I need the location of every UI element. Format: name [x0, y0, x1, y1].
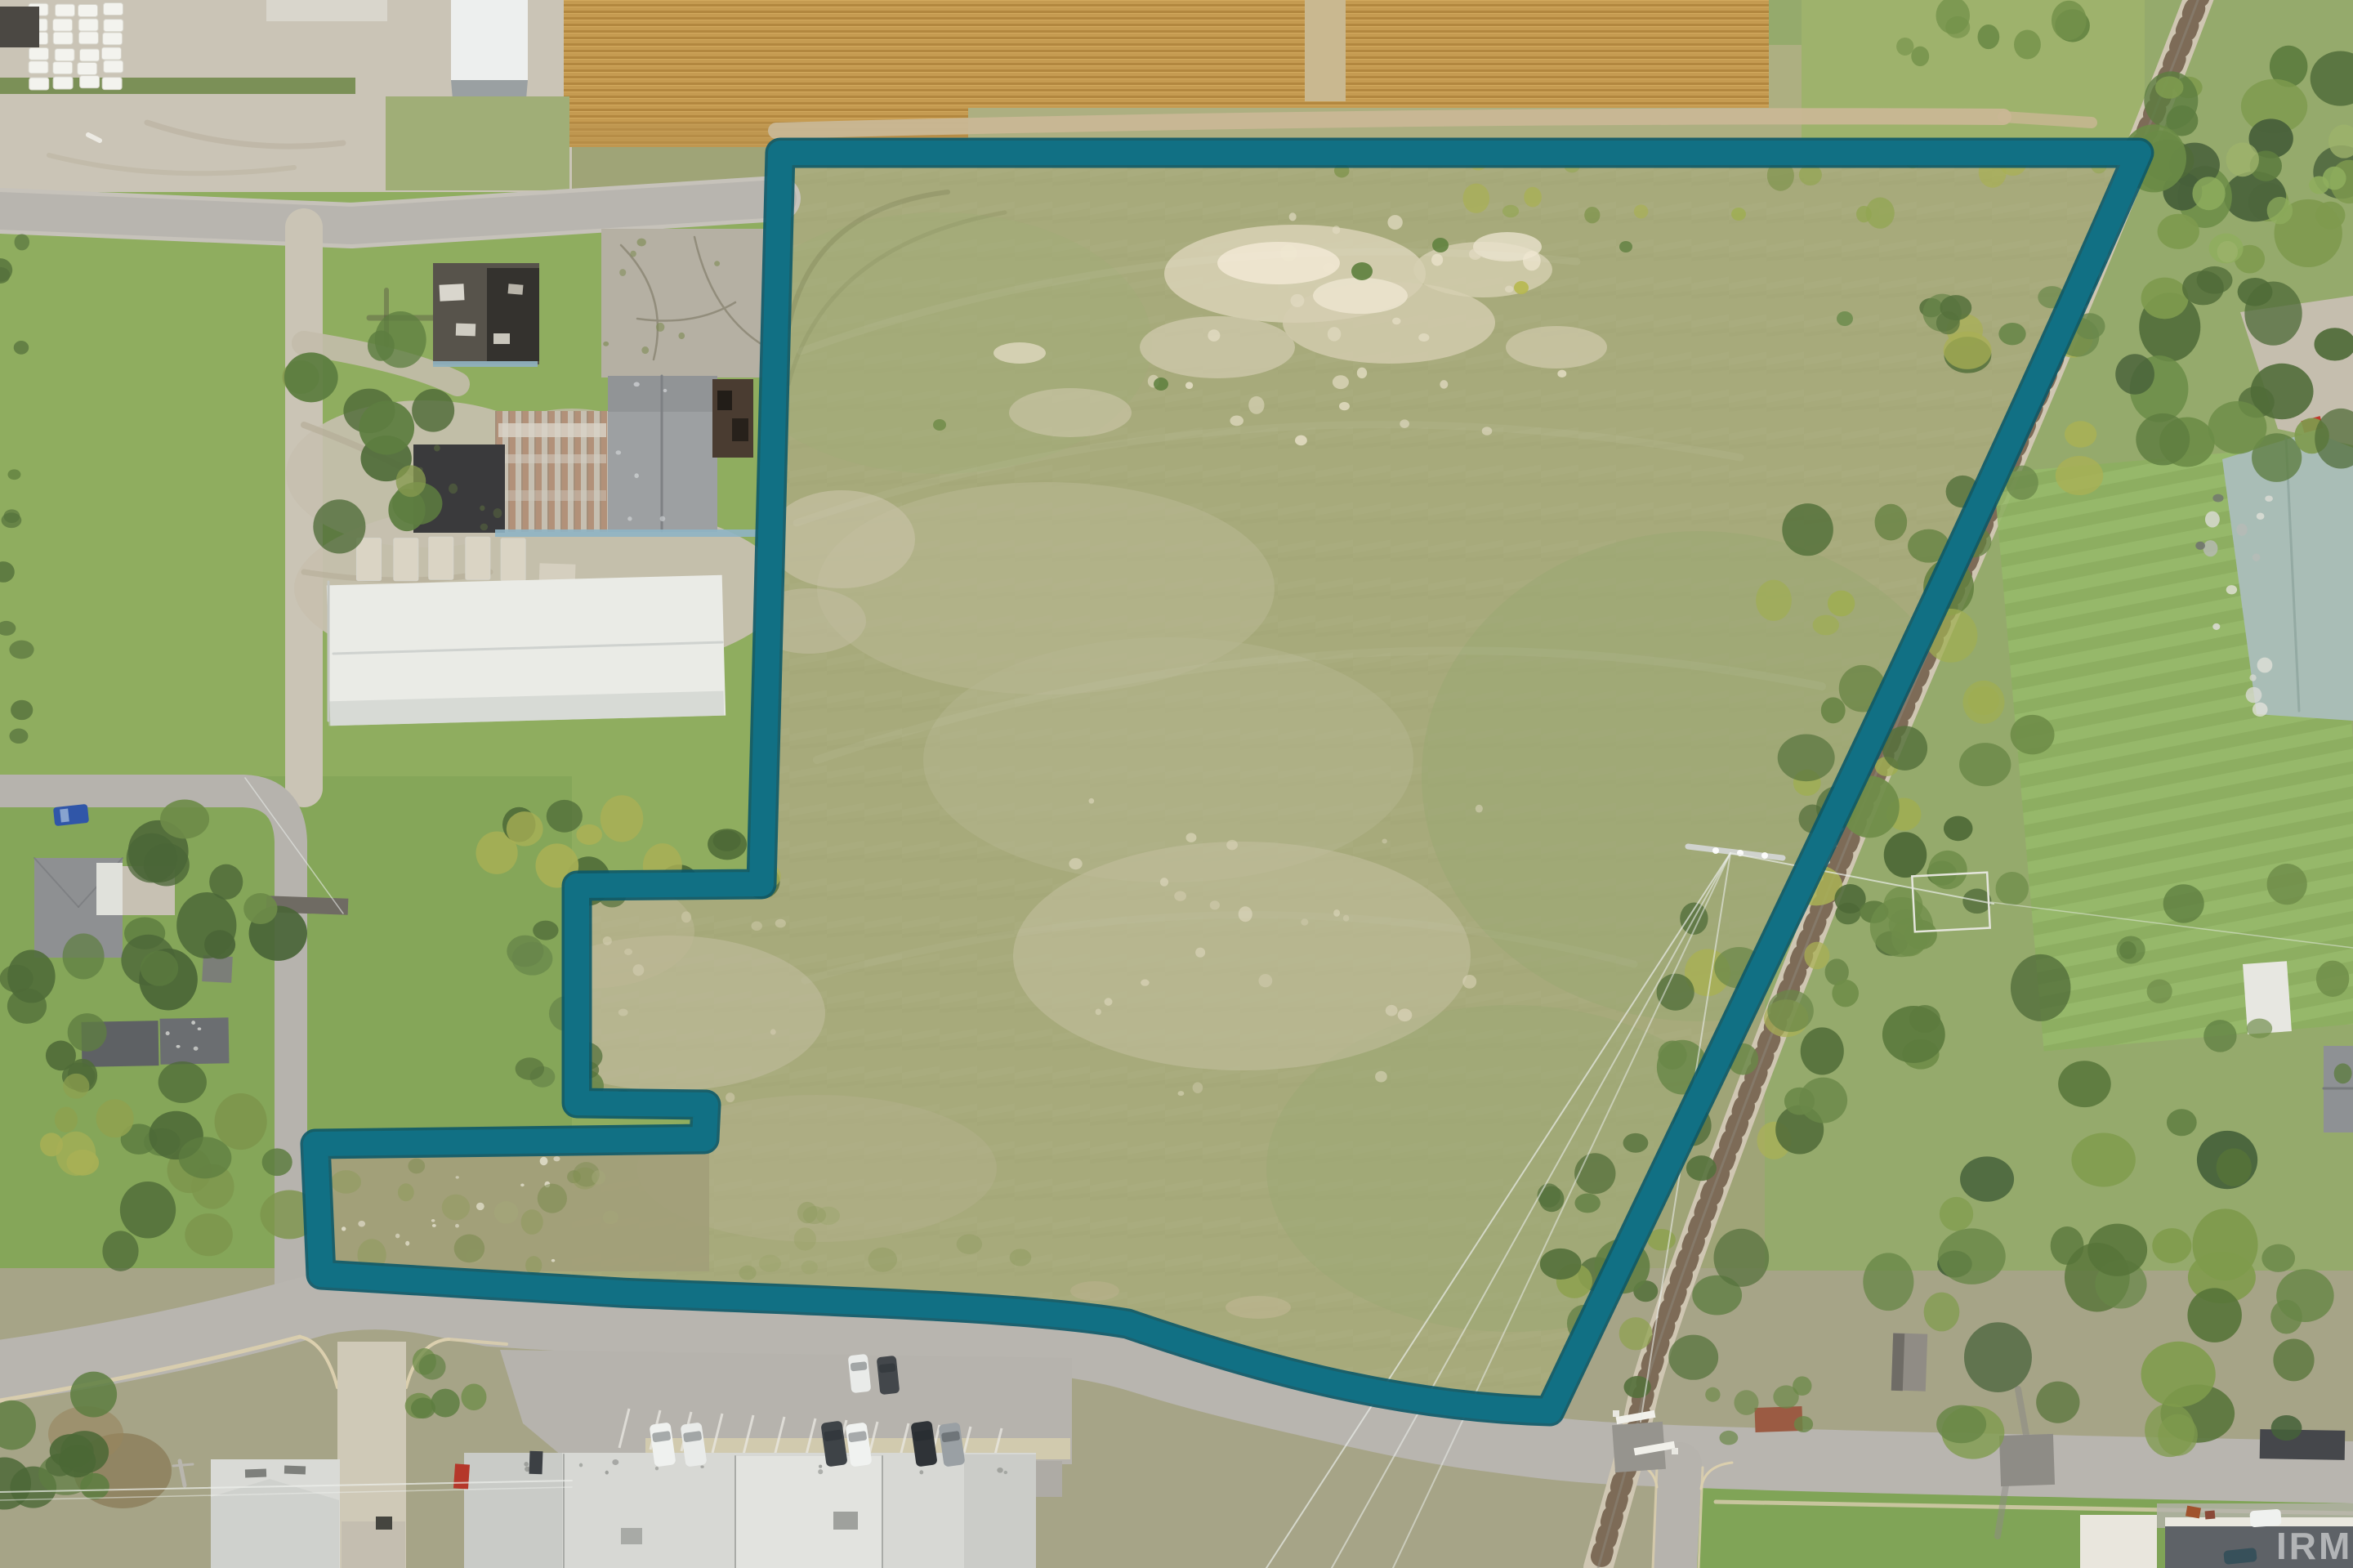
rail-brush-blob: [1962, 681, 2004, 724]
dirt-spot: [1070, 1281, 1119, 1301]
dark-pavement-patch: [1999, 1434, 2055, 1486]
strip-debris-blob: [455, 1224, 459, 1228]
mobile-home-vents-blob: [194, 1047, 199, 1051]
weeds-on-pad-blob: [641, 346, 649, 354]
junk-pile-blob: [2257, 658, 2273, 673]
rail-brush-blob: [1756, 580, 1792, 621]
sand-flecks-blob: [1226, 840, 1238, 850]
brush-along-boundary-blob: [512, 942, 553, 976]
skylight-dots-blob: [700, 1466, 703, 1468]
sand-flecks-blob: [1557, 370, 1566, 377]
grass-gap-blob: [2267, 197, 2293, 225]
tree-band-bottom-right-blob: [1863, 1253, 1913, 1311]
sparse-lawn-trees-blob: [2147, 979, 2172, 1003]
sand-flecks-blob: [1096, 1009, 1101, 1016]
field-edge-bushes-blob: [801, 1261, 818, 1275]
residential-trees-blob: [215, 1093, 267, 1150]
sand-flecks-blob: [1323, 263, 1335, 273]
hay-bale-stack-cell: [53, 77, 73, 89]
roof-vents-blob: [663, 389, 668, 392]
brush-along-boundary-blob: [533, 921, 558, 940]
rail-brush-blob: [1686, 1155, 1717, 1181]
tree-band-bottom-right-blob: [2261, 1244, 2295, 1272]
tree-block-top-right-blob: [2182, 270, 2224, 305]
inner-tree-row-blob: [547, 800, 583, 833]
field-edge-bushes-blob: [759, 1255, 781, 1272]
left-edge-hedge-blob: [15, 234, 29, 250]
tree-band-bottom-right-blob: [2187, 1288, 2241, 1342]
tree-band-east-blob: [1944, 816, 1973, 842]
strip-scrub-blob: [398, 1183, 414, 1201]
yellow-tree-blob: [55, 1107, 78, 1132]
field-edge-bushes-blob: [739, 1266, 757, 1280]
crossing-bushes-blob: [1794, 1416, 1813, 1432]
rail-brush-blob: [1659, 1041, 1687, 1070]
red-truck: [453, 1463, 470, 1489]
gate-post: [1672, 1448, 1678, 1454]
sparse-lawn-trees-blob: [2119, 941, 2136, 959]
sand-flecks-blob: [1476, 805, 1483, 813]
sand-flecks-blob: [1339, 402, 1350, 410]
crossing-bushes-blob: [1705, 1387, 1720, 1402]
building-b-section: [464, 1453, 562, 1568]
small-shed: [202, 955, 233, 983]
hay-bale-stack-cell: [80, 49, 100, 61]
top-scrub-row-blob: [1502, 205, 1519, 217]
farm-west-trees-blob: [284, 352, 338, 402]
skylight-dots-blob: [997, 1467, 1002, 1473]
top-edge-bushes-blob: [2052, 1, 2087, 40]
white-garage: [96, 863, 123, 915]
field-edge-bushes-blob: [803, 1206, 826, 1224]
residential-trees-blob: [102, 1231, 138, 1271]
rail-brush-blob: [1574, 1193, 1600, 1213]
farm-house-dark-wing: [487, 268, 539, 361]
hay-bale-stack-cell: [104, 3, 123, 16]
strip-scrub-blob: [331, 1170, 361, 1194]
strip-scrub-blob: [592, 1170, 605, 1185]
residential-trees-blob: [262, 1148, 292, 1176]
rail-brush-blob: [1574, 1153, 1615, 1194]
dirt-track-spur: [2003, 117, 2092, 123]
tree-band-bottom-right-blob: [2087, 1224, 2147, 1276]
hay-bale-stack-cell: [53, 62, 73, 74]
skylight-dots-blob: [818, 1469, 823, 1474]
inner-tree-row-blob: [708, 829, 747, 860]
sand-flecks-blob: [1333, 226, 1341, 234]
lone-bush: [1432, 238, 1449, 252]
white-roof-building: [451, 0, 528, 80]
tree-band-bottom-right-blob: [1960, 1156, 2014, 1201]
tree-band-bottom-right-blob: [2271, 1415, 2302, 1441]
rooftop-unit: [621, 1528, 642, 1544]
weeds-on-pad-blob: [656, 323, 664, 332]
junk-pile-blob: [2257, 512, 2265, 520]
gray-shed-side: [1891, 1333, 1904, 1391]
roof-vents-blob: [634, 473, 638, 478]
pale-shed-strip: [266, 0, 387, 21]
sand-flecks-blob: [603, 936, 612, 945]
rail-brush-blob: [1813, 615, 1839, 636]
strip-debris-blob: [553, 1156, 560, 1161]
pole-insulator: [1712, 847, 1719, 854]
white-structure: [2080, 1515, 2157, 1568]
roof-hole: [732, 418, 748, 441]
left-edge-hedge-blob: [7, 469, 20, 480]
strip-scrub-blob: [603, 1211, 618, 1225]
hay-bale-stack-cell: [102, 78, 122, 90]
skylight-dots-blob: [919, 1470, 923, 1474]
dark-roof-strip: [2260, 1429, 2346, 1460]
mobile-home-vents-blob: [166, 1031, 170, 1035]
tree-block-top-right-blob: [2155, 76, 2183, 98]
moss-dots-blob: [449, 484, 458, 494]
weeds-on-pad-blob: [678, 333, 685, 339]
hay-bale-stack-cell: [29, 47, 48, 60]
hay-bale-stack-cell: [104, 20, 123, 32]
lone-bush: [1619, 241, 1632, 252]
sand-flecks-blob: [1440, 380, 1448, 388]
grass-gap-blob: [2309, 176, 2329, 194]
tree-band-bottom-right-blob: [2152, 1228, 2191, 1263]
rail-brush-blob: [1875, 504, 1908, 541]
hay-bale-stack-cell: [78, 32, 98, 44]
field-edge-bushes-blob: [1010, 1249, 1032, 1266]
farm-west-trees-blob: [396, 465, 426, 497]
tree-band-bottom-right-blob: [2270, 1300, 2302, 1334]
tree-block-top-right-blob: [2158, 214, 2199, 249]
junk-pile-blob: [2265, 495, 2273, 501]
mobile-home-vents-blob: [176, 1045, 181, 1048]
moss-dots-blob: [434, 444, 440, 451]
parked-car-dark: [877, 1356, 900, 1395]
strip-debris-blob: [456, 1176, 459, 1178]
top-scrub-row-blob: [1584, 207, 1600, 223]
tree-band-east-blob: [1928, 851, 1967, 889]
dark-roof-building: [0, 7, 39, 47]
parked-car-white-body: [848, 1354, 872, 1393]
tree-band-bottom-right-blob: [1964, 1322, 2032, 1392]
rust-roof-streak: [498, 423, 606, 437]
crossing-bushes-blob: [1734, 1390, 1758, 1415]
tree-band-east-blob: [1996, 872, 2029, 905]
drive-trees-blob: [461, 1383, 486, 1410]
inner-tree-row-blob: [576, 824, 602, 845]
hay-bale-stack-cell: [29, 61, 48, 74]
bare-dirt-patch: [1506, 326, 1607, 369]
strip-debris-blob: [395, 1234, 400, 1239]
hay-bale-stack-cell: [104, 60, 123, 73]
sand-flecks-blob: [1295, 436, 1307, 446]
sand-flecks-blob: [1069, 858, 1082, 869]
sand-flecks-blob: [1186, 833, 1197, 842]
rail-brush-blob: [1804, 942, 1829, 970]
tree-band-bottom-right-blob: [2193, 1208, 2258, 1280]
weeds-on-pad-blob: [630, 251, 636, 257]
junk-pile-blob: [2246, 687, 2262, 703]
bright-sand-patch: [1313, 278, 1408, 314]
sand-flecks-blob: [1193, 1082, 1203, 1093]
left-edge-hedge-blob: [14, 341, 29, 355]
sparse-lawn-trees-blob: [2163, 884, 2204, 922]
strip-debris-blob: [431, 1219, 435, 1222]
building-b-section: [735, 1456, 882, 1568]
roof-patch: [456, 324, 476, 337]
residential-trees-blob: [243, 893, 277, 924]
roof-vents-blob: [634, 382, 640, 387]
rail-brush-blob: [2056, 456, 2103, 495]
rust-roof-streak: [498, 490, 606, 501]
south-road: [1675, 1464, 1680, 1568]
farm-west-trees-blob: [368, 330, 395, 360]
roof-vent: [284, 1466, 306, 1475]
sand-flecks-blob: [1418, 333, 1429, 342]
sand-flecks-blob: [1230, 416, 1243, 427]
moss-dots-blob: [480, 524, 488, 531]
residential-trees-blob: [120, 1182, 176, 1239]
junk-pile-blob: [2203, 540, 2218, 556]
sand-flecks-blob: [1333, 375, 1349, 389]
tree-band-east-blob: [2011, 715, 2055, 754]
tree-block-top-right-blob: [2208, 401, 2267, 453]
roof-vents-blob: [616, 450, 622, 454]
junk-pile-blob: [2195, 542, 2205, 550]
left-edge-hedge-blob: [11, 700, 33, 720]
tree-band-bottom-right-blob: [2071, 1133, 2135, 1187]
residential-trees-blob: [127, 833, 177, 883]
mls-watermark: IRMLS: [2276, 1525, 2353, 1567]
rail-brush-blob: [1801, 1027, 1844, 1074]
mobile-home: [160, 1017, 230, 1064]
weeds-on-pad-blob: [603, 342, 609, 346]
lone-bush: [1154, 377, 1168, 391]
residential-trees-blob: [63, 933, 105, 979]
field-edge-bushes-blob: [794, 1227, 816, 1250]
roof-vents-blob: [660, 516, 666, 521]
weeds-on-pad-blob: [637, 239, 646, 247]
strip-debris-blob: [540, 1157, 548, 1165]
rail-brush-blob: [1821, 697, 1846, 723]
yellow-tree-blob: [96, 1099, 134, 1137]
inner-tree-row-blob: [507, 811, 543, 847]
skylight-dots-blob: [1004, 1471, 1008, 1474]
strip-debris-blob: [520, 1183, 525, 1186]
grass-gap-blob: [2192, 176, 2225, 210]
hay-bale-stack-cell: [78, 4, 98, 16]
sparse-lawn-trees-blob: [2316, 961, 2349, 997]
rail-brush-blob: [1767, 989, 1814, 1032]
skylight-dots-blob: [655, 1467, 659, 1471]
crossing-bushes-blob: [1793, 1376, 1811, 1396]
rail-brush-blob: [1623, 1133, 1649, 1153]
tree-block-top-right-blob: [2115, 354, 2154, 395]
residential-trees-blob: [209, 864, 243, 900]
red-brick-bit: [2205, 1510, 2216, 1519]
sand-flecks-blob: [751, 922, 761, 931]
rail-brush-blob: [1998, 323, 2025, 345]
strip-scrub-blob: [538, 1184, 567, 1213]
strip-scrub-blob: [521, 1209, 543, 1235]
top-edge-bushes-blob: [2014, 29, 2041, 59]
moss-dots-blob: [493, 508, 502, 518]
strip-scrub-blob: [454, 1235, 484, 1263]
bare-dirt-patch: [1009, 388, 1132, 437]
parked-car-white: [848, 1354, 872, 1393]
yellow-tree-blob: [63, 1074, 89, 1099]
hay-bale-stack-cell: [103, 33, 123, 45]
hay-bale-stack-cell: [78, 19, 98, 31]
lone-bush: [1351, 262, 1373, 280]
sand-flecks-blob: [1088, 798, 1094, 804]
residential-trees-blob: [185, 1213, 233, 1256]
sand-flecks-blob: [1160, 878, 1168, 887]
rail-brush-blob: [1540, 1249, 1582, 1280]
drive-trees-blob: [431, 1389, 459, 1418]
tree-band-bottom-right-blob: [2036, 1382, 2079, 1423]
concrete-slabs-row-cell: [501, 538, 525, 581]
junk-pile-blob: [2205, 511, 2220, 528]
dark-car: [529, 1451, 543, 1475]
top-edge-bushes-blob: [1911, 47, 1929, 66]
yellow-tree-blob: [56, 1132, 96, 1176]
sand-flecks-blob: [1505, 286, 1514, 293]
tree-band-east-blob: [2058, 1061, 2111, 1107]
tree-band-bottom-right-blob: [2158, 1414, 2198, 1456]
field-pale-swath: [1013, 842, 1471, 1070]
sparse-lawn-trees-blob: [2267, 864, 2307, 905]
residential-trees-blob: [160, 799, 209, 838]
residential-trees-blob: [176, 892, 236, 958]
loading-pad: [342, 1521, 405, 1568]
rail-brush-blob: [1944, 332, 1992, 369]
roof-patch: [493, 333, 510, 344]
sand-flecks-blob: [775, 919, 786, 928]
sand-flecks-blob: [770, 1029, 776, 1034]
residential-trees-blob: [141, 950, 178, 985]
bright-sand-patch: [1217, 242, 1340, 284]
top-scrub-row-blob: [1524, 187, 1542, 208]
rail-brush-blob: [1959, 743, 2011, 786]
field-edge-bushes-blob: [868, 1248, 897, 1272]
strip-scrub-blob: [442, 1195, 470, 1221]
tree-band-bottom-right-blob: [1938, 1228, 2006, 1284]
sand-flecks-blob: [1462, 975, 1476, 989]
rail-brush-blob: [2065, 421, 2096, 447]
strip-scrub-blob: [494, 1201, 519, 1224]
sand-flecks-blob: [1105, 998, 1113, 1006]
top-scrub-row-blob: [1634, 204, 1648, 218]
rail-brush-blob: [1668, 1335, 1718, 1380]
grass-gap-blob: [2226, 142, 2259, 176]
junk-pile-blob: [2212, 494, 2223, 503]
aerial-photo: IRMLS: [0, 0, 2353, 1568]
moss-dots-blob: [480, 506, 484, 511]
bright-sand-patch: [993, 342, 1046, 364]
top-scrub-row-blob: [1463, 183, 1490, 212]
top-edge-bushes-blob: [1978, 25, 2000, 49]
rail-brush-blob: [1828, 591, 1855, 617]
top-scrub-row-blob: [1866, 198, 1895, 229]
hay-bale-stack-cell: [55, 4, 74, 16]
sand-flecks-blob: [1174, 891, 1186, 900]
sand-flecks-blob: [618, 1008, 628, 1016]
drive-trees-blob: [411, 1398, 435, 1419]
sand-flecks-blob: [1185, 382, 1193, 389]
sand-flecks-blob: [1258, 974, 1272, 987]
tree-band-east-blob: [1884, 832, 1927, 878]
lone-bush: [933, 419, 946, 431]
skylight-dots-blob: [819, 1465, 822, 1468]
tree-block-top-right-blob: [2141, 278, 2189, 319]
sand-flecks-blob: [1375, 1071, 1387, 1083]
sand-flecks-blob: [1141, 980, 1150, 986]
mobile-home-vents-blob: [191, 1021, 195, 1025]
dock-pit: [376, 1517, 392, 1530]
strip-debris-blob: [551, 1259, 556, 1262]
parked-car-dark-body: [877, 1356, 900, 1395]
rail-brush-blob: [1714, 1229, 1770, 1287]
hay-bale-stack-cell: [78, 63, 97, 75]
drive-trees-blob: [419, 1354, 446, 1380]
inner-tree-row-blob: [601, 795, 643, 842]
rooftop-unit: [833, 1512, 858, 1530]
power-pole-crossarm: [173, 1464, 193, 1466]
rust-roof-streak: [498, 454, 606, 463]
sand-flecks-blob: [1248, 396, 1264, 414]
sand-flecks-blob: [1392, 318, 1400, 325]
grass-gap-blob: [2217, 241, 2239, 262]
parked-car-dark-glass: [879, 1363, 896, 1373]
junk-pile-blob: [2249, 674, 2256, 681]
corner-trees-bottom-left-blob: [70, 1372, 117, 1418]
rail-brush-blob: [1657, 974, 1694, 1011]
sand-flecks-blob: [1208, 329, 1220, 342]
rail-brush-blob: [1936, 311, 1960, 334]
left-edge-hedge-blob: [9, 729, 28, 744]
concrete-slabs-row-cell: [466, 537, 490, 579]
farm-west-trees-blob: [359, 400, 414, 454]
tree-band-east-blob: [2011, 954, 2070, 1021]
hay-bale-stack-cell: [53, 32, 73, 44]
bare-dirt-patch: [1140, 316, 1295, 378]
left-edge-hedge-blob: [9, 641, 33, 659]
tree-band-bottom-right-blob: [2051, 1226, 2084, 1265]
blue-truck-windshield: [60, 809, 69, 823]
junk-pile-blob: [2212, 623, 2220, 630]
crossing-bushes-blob: [1719, 1431, 1738, 1445]
residential-trees-blob: [159, 1061, 207, 1103]
rail-brush-blob: [1799, 1078, 1847, 1124]
residential-trees-blob: [68, 1013, 107, 1052]
brush-along-boundary-blob: [516, 1057, 544, 1080]
house-eave-blue: [433, 361, 538, 367]
sand-flecks-blob: [1210, 900, 1220, 909]
gate-post: [1613, 1410, 1619, 1417]
pole-insulator: [1761, 852, 1768, 859]
strip-debris-blob: [405, 1241, 409, 1246]
strip-debris-blob: [432, 1224, 436, 1227]
tree-block-top-right-blob: [2238, 278, 2273, 306]
corner-trees-bottom-left-blob: [59, 1445, 96, 1477]
strip-scrub-blob: [408, 1159, 425, 1174]
tree-band-bottom-right-blob: [1924, 1293, 1960, 1332]
lone-bush: [1837, 311, 1853, 326]
strip-debris-blob: [476, 1203, 484, 1210]
hay-bale-stack-cell: [101, 47, 121, 60]
skylight-dots-blob: [612, 1459, 618, 1465]
sand-flecks-blob: [624, 949, 632, 955]
sparse-lawn-trees-blob: [2203, 1020, 2236, 1052]
